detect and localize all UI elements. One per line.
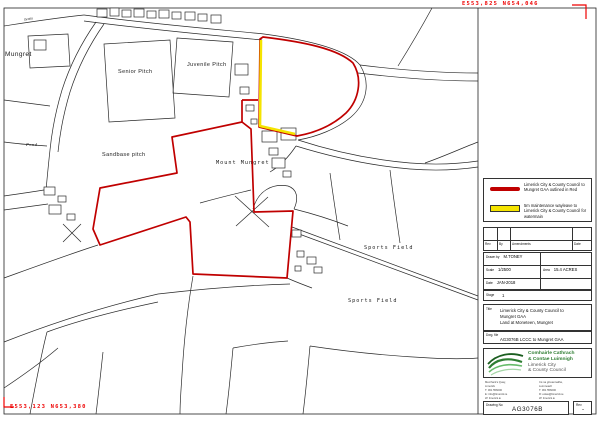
rev-label: Rev bbox=[576, 403, 582, 407]
legend-red-line-swatch bbox=[490, 187, 520, 191]
drawing-no-box: Drawing No AG3076B bbox=[483, 401, 569, 415]
drawing-no-label: Drawing No bbox=[486, 403, 503, 407]
revision-col-amendments: Amendments bbox=[511, 241, 573, 251]
label-juvenile-pitch: Juvenile Pitch bbox=[187, 62, 227, 68]
pitch-outlines bbox=[28, 34, 233, 122]
rev-box: Rev - bbox=[573, 401, 592, 415]
council-bridge-logo-icon bbox=[487, 351, 525, 377]
scale-value: 1/2500 bbox=[498, 267, 511, 272]
council-irish-name-1: Comhairle Cathrach bbox=[528, 351, 574, 357]
label-sports-field-1: Sports Field bbox=[364, 245, 413, 251]
drawn-by-row: Drawn byM.TONEY bbox=[484, 253, 591, 266]
revision-header-row: Rev By Amendments Date bbox=[484, 241, 591, 251]
address-left-line: W: limerick.ie bbox=[485, 397, 507, 401]
council-irish-name-2: & Contae Luimnigh bbox=[528, 357, 574, 363]
title-line-3: Land at Moneteen, Mungret bbox=[500, 320, 564, 326]
council-address-left: Merchant's Quay, Limerick T: 061 556000 … bbox=[485, 381, 507, 401]
label-sports-field-2: Sports Field bbox=[348, 298, 397, 304]
label-pond: Pond bbox=[26, 142, 37, 147]
area-label: Area bbox=[543, 268, 550, 272]
label-sandbase-pitch: Sandbase pitch bbox=[102, 152, 146, 158]
title-block-panel: Limerick City & County Council to Mungre… bbox=[483, 0, 594, 422]
stage-value: 1 bbox=[502, 293, 504, 298]
buildings-group bbox=[34, 8, 322, 273]
legend-yellow-text: 5m maintenance wayleave to Limerick City… bbox=[524, 203, 590, 219]
title-label: Title bbox=[486, 307, 492, 311]
date-label: Date bbox=[486, 281, 493, 285]
dwg-file-value: AG3076B LCCC to Mungret GAA bbox=[500, 337, 564, 342]
stage-label: Stage bbox=[486, 293, 494, 297]
dwg-file-label: Dwg. file bbox=[486, 333, 498, 337]
legend-red-text: Limerick City & County Council to Mungre… bbox=[524, 182, 590, 193]
title-line-1: Limerick City & County Council to bbox=[500, 308, 564, 314]
scale-area-row: Scale1/2500 Area15.4 ACRES bbox=[484, 266, 591, 279]
stage-row: Stage 1 bbox=[483, 290, 592, 301]
legend-yellow-swatch bbox=[490, 205, 520, 212]
address-right-line: W: limerick.ie bbox=[539, 397, 564, 401]
drawn-by-label: Drawn by bbox=[486, 255, 499, 259]
rev-value: - bbox=[582, 406, 585, 413]
dwg-file-box: Dwg. file AG3076B LCCC to Mungret GAA bbox=[483, 331, 592, 344]
legend-box: Limerick City & County Council to Mungre… bbox=[483, 178, 592, 222]
coordinate-bottom-left: E553,123 N653,380 bbox=[10, 404, 87, 410]
revision-col-by: By bbox=[498, 241, 511, 251]
revision-col-rev: Rev bbox=[484, 241, 498, 251]
drawing-no-value: AG3076B bbox=[512, 406, 543, 413]
council-logo-box: Comhairle Cathrach & Contae Luimnigh Lim… bbox=[483, 348, 592, 378]
revision-table: Rev By Amendments Date bbox=[483, 227, 592, 251]
label-senior-pitch: Senior Pitch bbox=[118, 69, 152, 75]
date-value: JAN-2018 bbox=[497, 280, 516, 285]
drawing-sheet: Mungret Grotto Senior Pitch Juvenile Pit… bbox=[0, 0, 600, 422]
drawn-by-value: M.TONEY bbox=[503, 254, 522, 259]
wayleave-yellow-line bbox=[260, 40, 295, 134]
label-mungret: Mungret bbox=[5, 51, 32, 58]
revision-empty-row bbox=[484, 228, 591, 241]
area-value: 15.4 ACRES bbox=[554, 267, 578, 272]
revision-col-date: Date bbox=[573, 241, 591, 251]
council-address-right: Cé na gCeannaithe, Luimneach T: 061 5560… bbox=[539, 381, 564, 401]
title-box: Title Limerick City & County Council to … bbox=[483, 304, 592, 331]
scale-label: Scale bbox=[486, 268, 494, 272]
info-block: Drawn byM.TONEY Scale1/2500 Area15.4 ACR… bbox=[483, 252, 592, 290]
council-english-name-2: & County Council bbox=[528, 368, 574, 374]
label-mount-mungret: Mount Mungret bbox=[216, 160, 270, 166]
